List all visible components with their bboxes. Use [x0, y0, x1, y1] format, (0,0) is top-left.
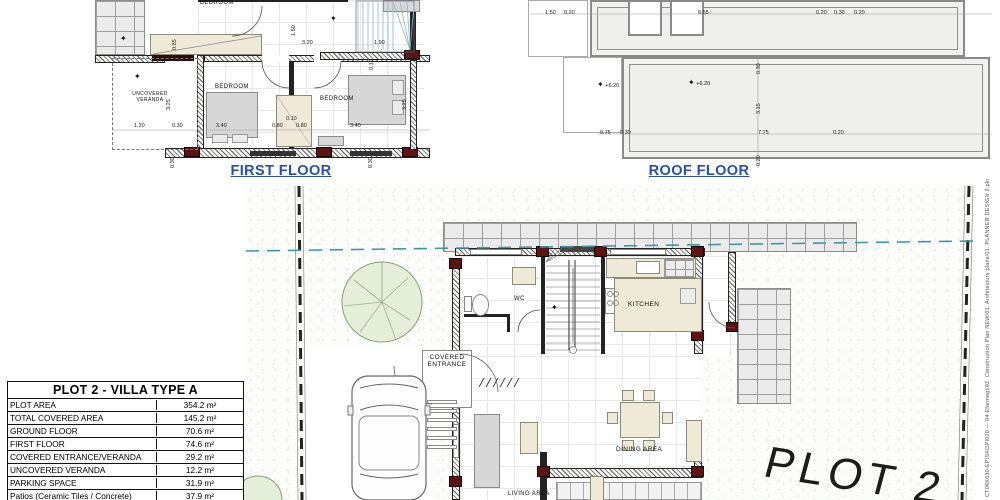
- wall-stair-west: [541, 256, 545, 354]
- table-row: TOTAL COVERED AREA145.2 m²: [8, 411, 243, 424]
- column-marker: [537, 466, 550, 477]
- dining-chair: [643, 390, 655, 401]
- table-row-value: 37.9 m²: [156, 491, 243, 500]
- table-row-label: GROUND FLOOR: [8, 426, 156, 436]
- table-row-value: 29.2 m²: [156, 452, 243, 462]
- pergola-slat: [427, 400, 457, 404]
- ff-window-south-1: [250, 151, 296, 156]
- ff-veranda-outline: [112, 58, 198, 150]
- kitchen-drainer: [664, 259, 694, 277]
- room-label-covered-entrance: COVERED ENTRANCE: [421, 354, 473, 368]
- bed-pillow: [232, 134, 248, 143]
- elevation-marker-icon: ✦: [551, 303, 558, 312]
- driveway: [303, 348, 433, 500]
- table-row: GROUND FLOOR70.6 m²: [8, 424, 243, 437]
- column-marker: [536, 246, 549, 257]
- first-floor-title: FIRST FLOOR: [211, 163, 351, 179]
- wall-northeast: [728, 252, 736, 330]
- side-filename-text: CT06K030-EPISKOPI020 — 04 Efarmogi/02. C…: [985, 192, 991, 497]
- roof-terrace-left: [528, 0, 588, 57]
- roof-lower: [622, 57, 990, 159]
- toilet-bowl: [472, 294, 489, 316]
- table-row-label: PLOT AREA: [8, 400, 156, 410]
- skylight: [628, 0, 662, 36]
- dining-chair: [622, 390, 634, 401]
- room-label-living-area: LIVING AREA: [508, 491, 550, 498]
- table-row: PLOT AREA354.2 m²: [8, 399, 243, 411]
- table-row-value: 12.2 m²: [156, 465, 243, 475]
- dimension-label: 0.30: [620, 130, 631, 136]
- table-row: FIRST FLOOR74.6 m²: [8, 437, 243, 450]
- column-marker: [726, 322, 738, 332]
- bed-pillow: [212, 134, 228, 143]
- elevation-marker-icon: ✦ +6.20: [597, 80, 619, 89]
- table-row-label: FIRST FLOOR: [8, 439, 156, 449]
- bed-pillow: [392, 80, 404, 95]
- kitchen-sink: [636, 261, 660, 274]
- dimension-label: 0.10: [286, 116, 297, 122]
- bed: [206, 92, 258, 138]
- dimension-label: 1.50: [545, 10, 556, 16]
- dimension-label: 1.20: [134, 123, 145, 129]
- table-row-label: UNCOVERED VERANDA: [8, 465, 156, 475]
- dimension-label: 0.20: [833, 130, 844, 136]
- pergola-slat: [427, 418, 457, 422]
- sofa: [474, 414, 500, 488]
- room-label-bedroom-left: BEDROOM: [215, 84, 249, 91]
- dimension-label: 0.20: [564, 10, 575, 16]
- table-row-label: COVERED ENTRANCE/VERANDA: [8, 452, 156, 462]
- ff-window-south-2: [350, 151, 392, 156]
- table-row: COVERED ENTRANCE/VERANDA29.2 m²: [8, 450, 243, 463]
- dimension-label: 0.20: [816, 10, 827, 16]
- ff-balcony: [150, 34, 262, 55]
- dimension-label: 3.40: [216, 123, 227, 129]
- elevation-marker-icon: ✦ +6.20: [688, 78, 710, 87]
- dimension-label: 0.30: [172, 123, 183, 129]
- room-label-bedroom-top: BEDROOM: [200, 0, 234, 7]
- bed-partial-top: [383, 0, 420, 12]
- dimension-label: 0.20: [756, 155, 762, 166]
- pergola-slat: [427, 445, 457, 449]
- architectural-drawing-sheet: FIRST FLOOR ROOF FLOOR BEDROOM BEDROOM B…: [0, 0, 1000, 500]
- table-row: Patios (Ceramic Tiles / Concrete)37.9 m²: [8, 489, 243, 500]
- column-marker: [316, 147, 332, 157]
- dining-table: [620, 402, 660, 438]
- elevation-marker-icon: ✦: [120, 34, 127, 43]
- table-row-value: 70.6 m²: [156, 426, 243, 436]
- coffee-table: [520, 422, 538, 454]
- window-north-1: [470, 249, 522, 255]
- table-row: PARKING SPACE31.9 m²: [8, 476, 243, 489]
- table-row-value: 31.9 m²: [156, 478, 243, 488]
- dimension-label: 0.80: [296, 123, 307, 129]
- dining-chair: [607, 412, 618, 424]
- dimension-label: 3.25: [402, 99, 408, 110]
- tv-unit: [590, 476, 604, 500]
- roof-floor-title: ROOF FLOOR: [634, 163, 764, 179]
- dimension-label: 3.25: [166, 99, 172, 110]
- window-north-2: [610, 249, 666, 255]
- room-label-bedroom-right: BEDROOM: [320, 96, 354, 103]
- dimension-label: 3.15: [756, 103, 762, 114]
- table-row-value: 74.6 m²: [156, 439, 243, 449]
- dimension-label: 8.55: [698, 10, 709, 16]
- dimension-label: 0.20: [854, 10, 865, 16]
- table-row-label: Patios (Ceramic Tiles / Concrete): [8, 491, 156, 500]
- elevation-marker-icon: ✦: [134, 72, 141, 81]
- room-label-kitchen: KITCHEN: [628, 302, 659, 309]
- pergola-slat: [427, 436, 457, 440]
- pergola-slat: [427, 427, 457, 431]
- toilet-tank: [464, 296, 472, 312]
- roof-lower-inner: [629, 64, 983, 152]
- dimension-label: 0.10: [369, 59, 375, 70]
- ff-terrace: [95, 0, 145, 55]
- column-marker: [691, 466, 704, 477]
- wc-sink: [512, 267, 536, 285]
- elevation-marker-icon: ✦: [330, 14, 337, 23]
- skylight: [670, 0, 704, 36]
- dimension-label: 0.30: [170, 157, 176, 168]
- wall-wc-south-b: [507, 314, 510, 332]
- dimension-label: 1.90: [374, 40, 385, 46]
- column-marker: [691, 246, 704, 257]
- dimension-label: 7.75: [758, 130, 769, 136]
- dimension-label: 0.30: [834, 10, 845, 16]
- table-row-label: PARKING SPACE: [8, 478, 156, 488]
- pergola-slat: [427, 409, 457, 413]
- dimension-label: 0.75: [600, 130, 611, 136]
- room-label-dining-area: DINING AREA: [616, 447, 662, 454]
- dimension-label: 3.20: [302, 40, 313, 46]
- ff-door-gap: [262, 55, 289, 62]
- areas-table: PLOT 2 - VILLA TYPE A PLOT AREA354.2 m²T…: [7, 381, 244, 500]
- table-row: UNCOVERED VERANDA12.2 m²: [8, 463, 243, 476]
- dimension-label: 0.85: [172, 39, 178, 50]
- table-row-value: 354.2 m²: [156, 400, 243, 410]
- south-steps: [556, 482, 702, 500]
- room-label-wc: WC: [514, 296, 525, 303]
- dimension-label: 1.60: [291, 25, 297, 36]
- table-row-value: 145.2 m²: [156, 413, 243, 423]
- wall-south: [545, 468, 703, 478]
- column-marker: [594, 246, 607, 257]
- dimension-label: 0.30: [368, 157, 374, 168]
- dimension-label: 0.30: [756, 63, 762, 74]
- areas-table-title: PLOT 2 - VILLA TYPE A: [8, 382, 243, 399]
- sideboard: [686, 420, 702, 462]
- roof-annex: [563, 57, 622, 133]
- wall-wc-south-a: [464, 314, 510, 317]
- table-row-label: TOTAL COVERED AREA: [8, 413, 156, 423]
- dimension-label: 3.40: [350, 123, 361, 129]
- areas-table-body: PLOT AREA354.2 m²TOTAL COVERED AREA145.2…: [8, 399, 243, 500]
- column-marker: [449, 258, 462, 269]
- dining-chair: [662, 412, 673, 424]
- fridge: [680, 288, 696, 304]
- patio-east: [737, 288, 791, 404]
- ff-wall-west: [197, 55, 204, 150]
- dimension-label: 0.80: [272, 123, 283, 129]
- ff-wall-east: [410, 60, 417, 150]
- column-marker: [449, 476, 462, 487]
- dresser: [318, 136, 344, 146]
